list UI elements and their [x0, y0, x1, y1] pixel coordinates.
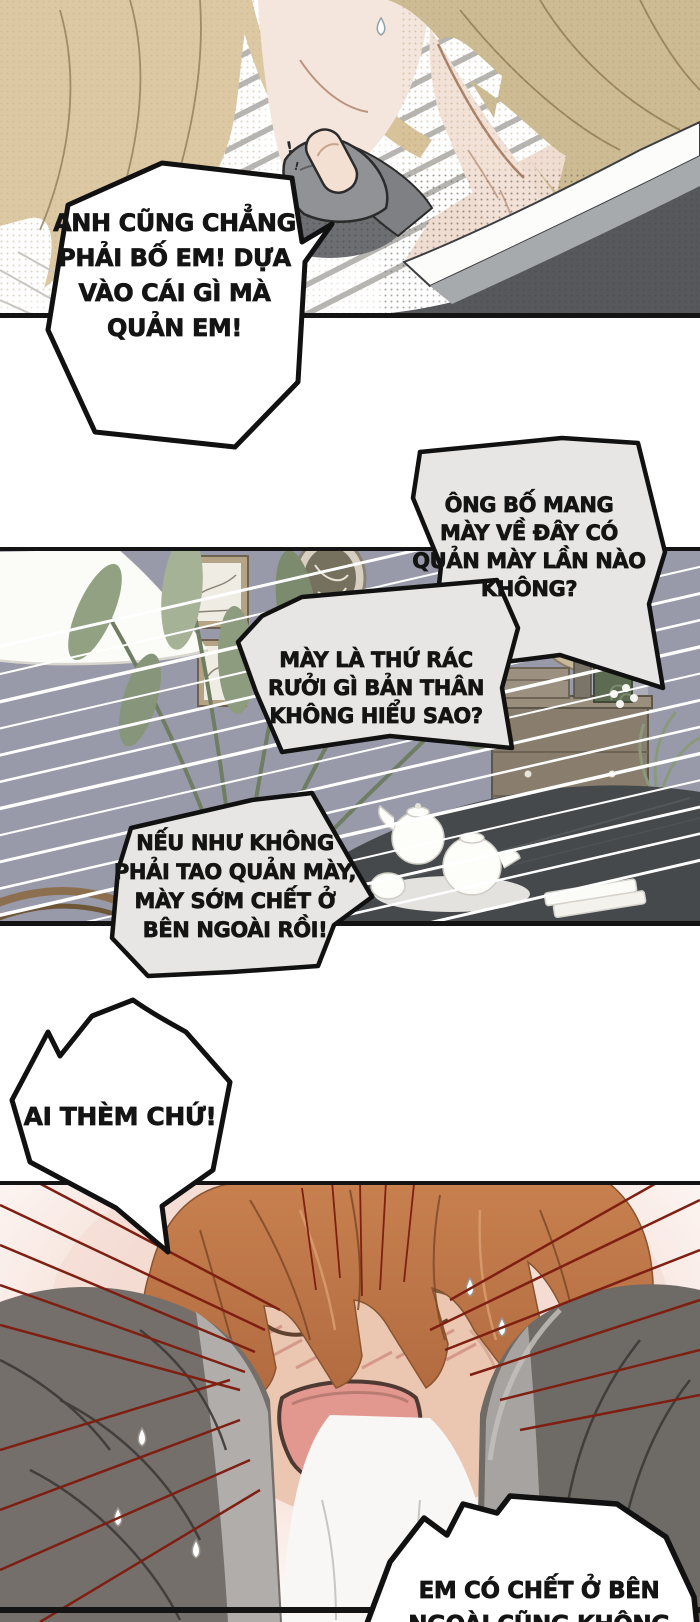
panel1-bottom-border — [0, 313, 700, 318]
panel2-bottom-border — [0, 921, 700, 926]
panel-argument-scene — [0, 0, 700, 318]
panel2-top-border — [0, 547, 700, 551]
panel-living-room — [0, 547, 700, 926]
comic-page: ANH CŨNG CHẲNG PHẢI BỐ EM! DỰA VÀO CÁI G… — [0, 0, 700, 1622]
bubble-5-text: AI THÈM CHỨ! — [22, 1102, 218, 1132]
panel3-top-border — [0, 1181, 700, 1185]
panel-crying-closeup — [0, 1181, 700, 1622]
panel3-bottom-border — [0, 1607, 700, 1613]
